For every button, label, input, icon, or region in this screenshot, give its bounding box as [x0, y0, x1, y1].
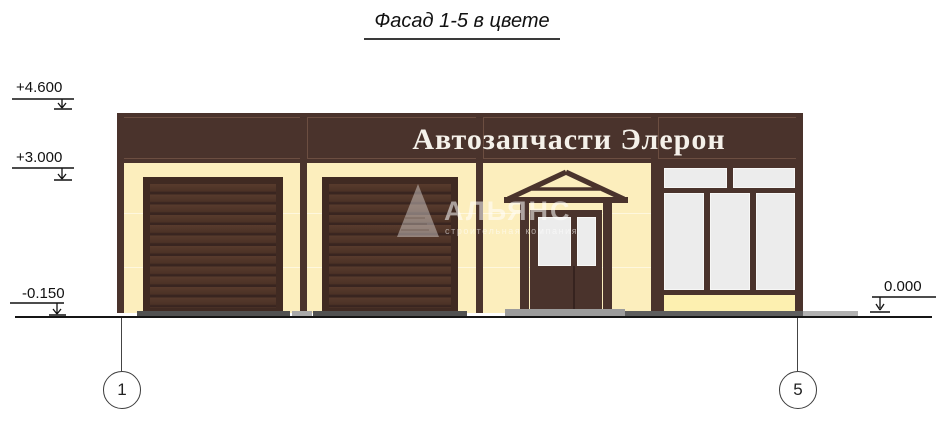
pilaster-divider — [300, 113, 307, 313]
pediment-diagonal — [566, 173, 600, 189]
axis-extension-line — [797, 318, 798, 371]
elevation-mark-middle-symbol — [12, 165, 82, 183]
facade-drawing: Фасад 1-5 в цвете Автозапчасти Элерон — [0, 0, 944, 425]
elevation-mark-ground-left-symbol — [8, 301, 78, 319]
watermark-tagline: строительная компания — [445, 226, 578, 236]
garage-door-1 — [143, 177, 283, 313]
spandrel-panel — [664, 295, 795, 311]
axis-extension-line — [121, 318, 122, 371]
elevation-label-top: +4.600 — [16, 79, 62, 96]
storefront-window-3 — [756, 193, 795, 290]
watermark-logo-triangle — [395, 182, 441, 240]
door-glass-right — [577, 217, 596, 266]
elevation-mark-ground-right-symbol — [868, 295, 938, 315]
pediment-diagonal — [532, 173, 566, 189]
ground-line — [15, 316, 932, 318]
band-panel — [123, 117, 301, 159]
elevation-mark-top-symbol — [12, 96, 82, 112]
elevation-label-ground-left: -0.150 — [22, 285, 65, 302]
pilaster-left-edge — [117, 113, 124, 313]
storefront-window-1 — [664, 193, 704, 290]
axis-marker-5: 5 — [779, 371, 817, 409]
drawing-title-text: Фасад 1-5 в цвете — [364, 10, 559, 40]
elevation-label-middle: +3.000 — [16, 149, 62, 166]
entrance-post-right — [603, 200, 612, 313]
shop-sign-text: Автозапчасти Элерон — [404, 118, 734, 162]
storefront-frame — [658, 163, 803, 313]
axis-marker-1: 1 — [103, 371, 141, 409]
door-leaf-divider — [573, 266, 575, 311]
storefront-window-2 — [710, 193, 750, 290]
elevation-label-ground-right: 0.000 — [884, 278, 922, 295]
watermark-name: АЛЬЯНС — [444, 196, 572, 227]
transom-window-1 — [664, 168, 727, 188]
drawing-title: Фасад 1-5 в цвете — [312, 10, 612, 40]
garage-door-1-slats — [150, 184, 276, 308]
transom-window-2 — [733, 168, 795, 188]
